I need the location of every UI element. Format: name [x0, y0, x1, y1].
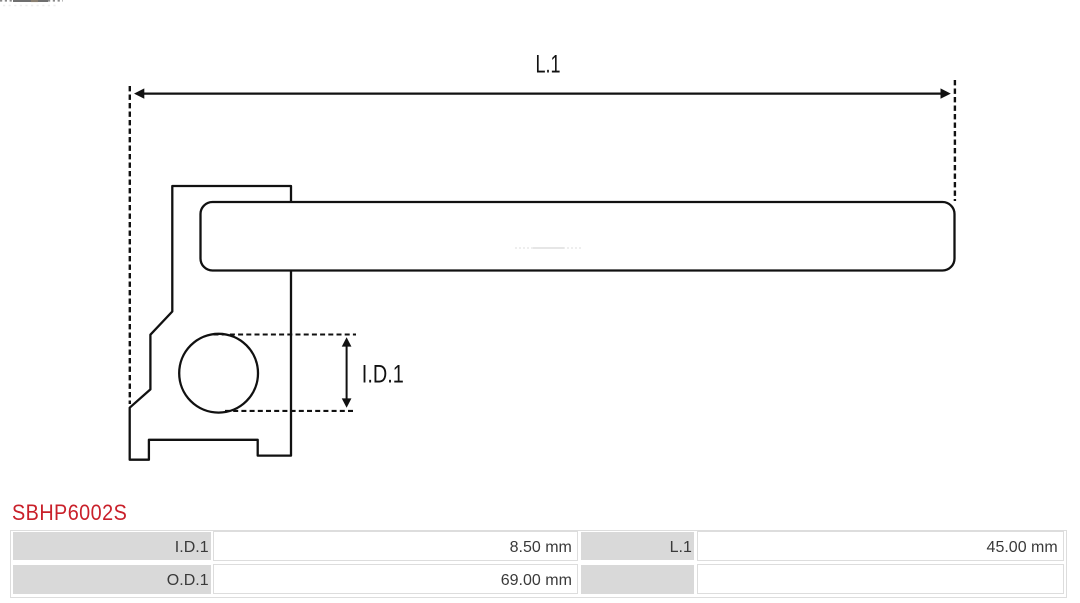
svg-text:I.D.1: I.D.1 — [362, 361, 404, 389]
svg-text:L.1: L.1 — [536, 51, 561, 79]
